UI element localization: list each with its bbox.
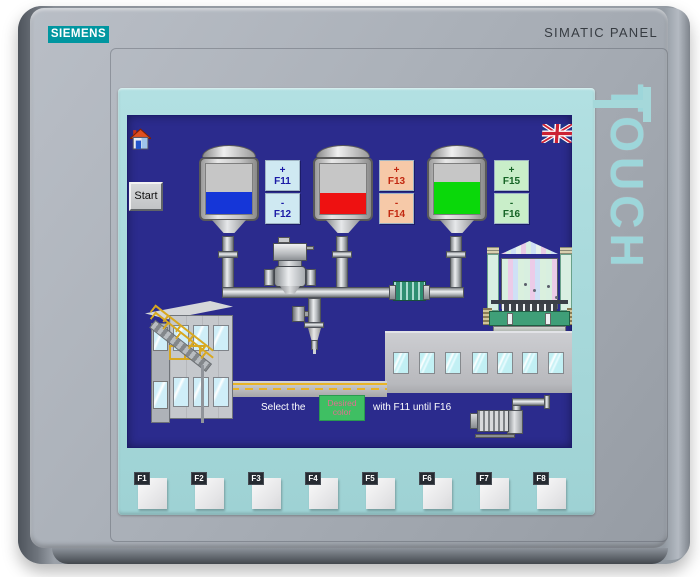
pipe-segment [222, 236, 234, 288]
instruction-prefix: Select the [261, 402, 305, 413]
outlet-actuator-stub [304, 311, 309, 317]
nozzle-cone [308, 328, 321, 340]
building-window [213, 325, 229, 351]
tank-level-indicator [433, 163, 481, 215]
start-button[interactable]: Start [129, 182, 163, 211]
tank-funnel [326, 220, 360, 233]
function-key-f1[interactable]: F1 [134, 472, 168, 512]
wall-window [497, 352, 513, 374]
control-room-building [139, 301, 239, 429]
valve-actuator-stub [306, 246, 314, 250]
function-key-f4[interactable]: F4 [305, 472, 339, 512]
tank-level-indicator [319, 163, 367, 215]
button-sign: - [281, 198, 284, 209]
uk-flag-icon[interactable] [541, 124, 572, 143]
tank-dome [430, 145, 484, 157]
pipe-flange [446, 251, 466, 258]
button-sign: - [395, 198, 398, 209]
button-sign: - [510, 198, 513, 209]
reactor-leg [507, 313, 513, 325]
bezel-accent-line [593, 100, 647, 108]
tank-liquid [320, 193, 366, 214]
bezel-accent-cap [643, 87, 651, 122]
tank-liquid [206, 192, 252, 215]
wall-window [548, 352, 564, 374]
reactor-vessel [487, 241, 572, 336]
pipe-segment [336, 236, 348, 288]
function-key-f8[interactable]: F8 [533, 472, 567, 512]
nozzle-end [313, 349, 316, 354]
simatic-panel-label: SIMATIC PANEL [528, 25, 658, 41]
motor-end-cap [470, 413, 478, 429]
function-key-label: F5 [362, 472, 378, 485]
function-key-label: F3 [248, 472, 264, 485]
tank-funnel [440, 220, 474, 233]
siemens-logo: SIEMENS [48, 26, 109, 43]
tank-funnel [212, 220, 246, 233]
valve-flange [264, 269, 274, 286]
decrease-blue-button-f12[interactable]: - F12 [265, 193, 300, 224]
button-key: F14 [388, 209, 405, 220]
building-window [153, 381, 168, 409]
pipe-segment [450, 236, 462, 288]
reactor-grill [502, 304, 557, 311]
pump-housing [507, 410, 523, 434]
valve-flange [306, 269, 316, 286]
tank-dome [202, 145, 256, 157]
hmi-screen: Start [127, 115, 572, 448]
motor-body [477, 410, 509, 432]
home-icon[interactable] [130, 127, 151, 150]
increase-red-button-f13[interactable]: + F13 [379, 160, 414, 191]
decrease-green-button-f16[interactable]: - F16 [494, 193, 529, 224]
desired-color-field: Desired color [319, 395, 365, 421]
function-key-f2[interactable]: F2 [191, 472, 225, 512]
device-bottom-edge [52, 548, 668, 564]
wall-window [445, 352, 461, 374]
mixing-valve-body [274, 266, 306, 287]
function-key-f7[interactable]: F7 [476, 472, 510, 512]
reactor-bubbles [524, 283, 527, 286]
function-key-label: F4 [305, 472, 321, 485]
function-key-f3[interactable]: F3 [248, 472, 282, 512]
blue-tank [199, 145, 259, 233]
valve-actuator [273, 243, 307, 261]
pump-motor [465, 394, 551, 444]
button-key: F13 [388, 176, 405, 187]
instruction-suffix: with F11 until F16 [373, 402, 451, 413]
tank-dome [316, 145, 370, 157]
button-key: F15 [503, 176, 520, 187]
button-sign: + [509, 165, 515, 176]
reactor-seal [487, 247, 499, 254]
function-key-label: F8 [533, 472, 549, 485]
button-key: F11 [274, 176, 291, 187]
button-key: F12 [274, 209, 291, 220]
reactor-leg [545, 313, 551, 325]
green-tank [427, 145, 487, 233]
outlet-pipe [308, 298, 321, 324]
reactor-cone-top [501, 241, 558, 254]
building-window [213, 377, 229, 407]
support-pole [201, 365, 204, 423]
decrease-red-button-f14[interactable]: - F14 [379, 193, 414, 224]
function-key-label: F7 [476, 472, 492, 485]
reactor-base [489, 311, 570, 326]
function-key-f6[interactable]: F6 [419, 472, 453, 512]
wall-window [522, 352, 538, 374]
tank-body [313, 157, 373, 221]
tank-liquid [434, 182, 480, 215]
building-window [173, 377, 189, 407]
function-key-label: F2 [191, 472, 207, 485]
reactor-seal [560, 247, 572, 254]
pipe-flange [304, 322, 324, 328]
function-key-label: F1 [134, 472, 150, 485]
increase-blue-button-f11[interactable]: + F11 [265, 160, 300, 191]
pipe-coupling [393, 281, 426, 301]
button-sign: + [394, 165, 400, 176]
motor-base [475, 434, 515, 438]
factory-wall [385, 331, 572, 393]
pipe-flange [218, 251, 238, 258]
tank-level-indicator [205, 163, 253, 215]
desired-color-line2: color [333, 408, 351, 417]
pump-pipe-flange [544, 395, 550, 409]
button-key: F16 [503, 209, 520, 220]
tank-body [199, 157, 259, 221]
wall-window [472, 352, 488, 374]
tank-body [427, 157, 487, 221]
wall-window [419, 352, 435, 374]
red-tank [313, 145, 373, 233]
wall-window [393, 352, 409, 374]
increase-green-button-f15[interactable]: + F15 [494, 160, 529, 191]
pipe-flange [332, 251, 352, 258]
function-key-f5[interactable]: F5 [362, 472, 396, 512]
panel-photo: SIEMENS SIMATIC PANEL TOUCH Start [0, 0, 700, 577]
function-key-label: F6 [419, 472, 435, 485]
button-sign: + [280, 165, 286, 176]
